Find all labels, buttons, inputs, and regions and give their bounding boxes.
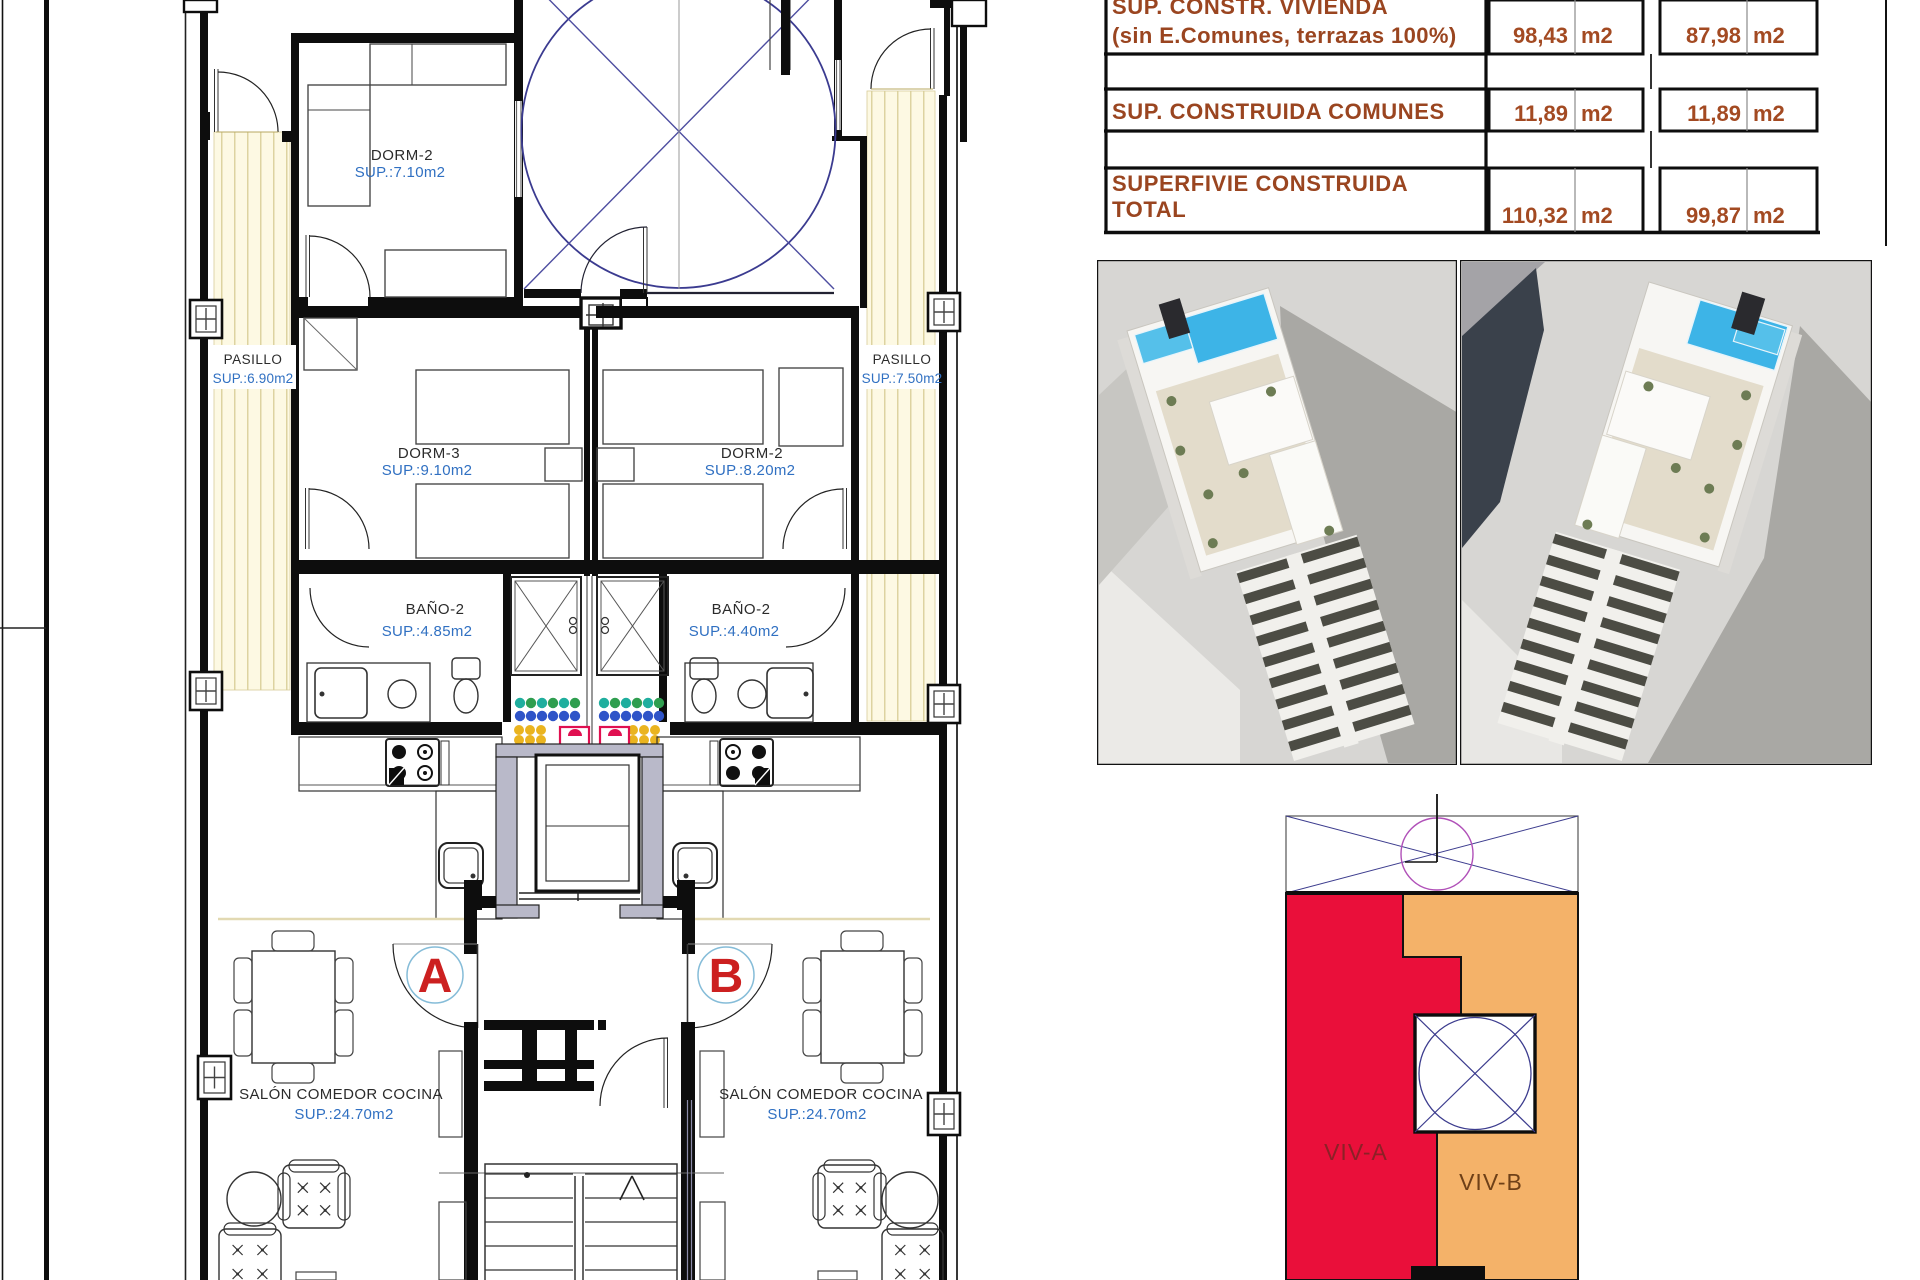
svg-text:DORM-3: DORM-3 xyxy=(398,445,460,462)
svg-text:PASILLO: PASILLO xyxy=(873,352,932,367)
svg-text:99,87: 99,87 xyxy=(1686,203,1741,228)
svg-text:SUP.:7.50m2: SUP.:7.50m2 xyxy=(862,371,943,386)
svg-text:SUP.:24.70m2: SUP.:24.70m2 xyxy=(767,1106,866,1123)
svg-text:DORM-2: DORM-2 xyxy=(721,445,783,462)
svg-text:(sin E.Comunes, terrazas 100%): (sin E.Comunes, terrazas 100%) xyxy=(1112,23,1457,48)
svg-text:11,89: 11,89 xyxy=(1514,101,1568,126)
svg-text:SUP. CONSTRUIDA COMUNES: SUP. CONSTRUIDA COMUNES xyxy=(1112,99,1445,124)
svg-text:SUP.:9.10m2: SUP.:9.10m2 xyxy=(382,462,473,479)
svg-text:87,98: 87,98 xyxy=(1686,23,1741,48)
svg-text:m2: m2 xyxy=(1753,203,1785,228)
svg-text:m2: m2 xyxy=(1753,23,1785,48)
svg-text:PASILLO: PASILLO xyxy=(224,352,283,367)
svg-text:VIV-B: VIV-B xyxy=(1459,1169,1523,1195)
svg-text:SUPERFIVIE CONSTRUIDA: SUPERFIVIE CONSTRUIDA xyxy=(1112,171,1408,196)
svg-text:m2: m2 xyxy=(1581,203,1613,228)
svg-text:SUP. CONSTR. VIVIENDA: SUP. CONSTR. VIVIENDA xyxy=(1112,0,1388,19)
svg-text:B: B xyxy=(709,950,744,1003)
svg-text:m2: m2 xyxy=(1753,101,1785,126)
svg-text:BAÑO-2: BAÑO-2 xyxy=(406,601,465,618)
svg-text:SALÓN COMEDOR COCINA: SALÓN COMEDOR COCINA xyxy=(719,1086,923,1103)
svg-text:DORM-2: DORM-2 xyxy=(371,147,433,164)
svg-text:SUP.:4.40m2: SUP.:4.40m2 xyxy=(689,623,780,640)
svg-text:m2: m2 xyxy=(1581,101,1613,126)
svg-text:98,43: 98,43 xyxy=(1513,23,1568,48)
svg-text:SUP.:4.85m2: SUP.:4.85m2 xyxy=(382,623,473,640)
svg-text:VIV-A: VIV-A xyxy=(1324,1139,1388,1165)
svg-text:11,89: 11,89 xyxy=(1687,101,1741,126)
svg-text:BAÑO-2: BAÑO-2 xyxy=(712,601,771,618)
svg-text:m2: m2 xyxy=(1581,23,1613,48)
svg-text:110,32: 110,32 xyxy=(1502,203,1568,228)
svg-text:SUP.:6.90m2: SUP.:6.90m2 xyxy=(213,371,294,386)
svg-text:TOTAL: TOTAL xyxy=(1112,197,1186,222)
svg-text:A: A xyxy=(418,950,453,1003)
svg-text:SUP.:7.10m2: SUP.:7.10m2 xyxy=(355,164,446,181)
svg-text:SUP.:24.70m2: SUP.:24.70m2 xyxy=(294,1106,393,1123)
svg-text:SALÓN COMEDOR COCINA: SALÓN COMEDOR COCINA xyxy=(239,1086,443,1103)
svg-text:SUP.:8.20m2: SUP.:8.20m2 xyxy=(705,462,796,479)
